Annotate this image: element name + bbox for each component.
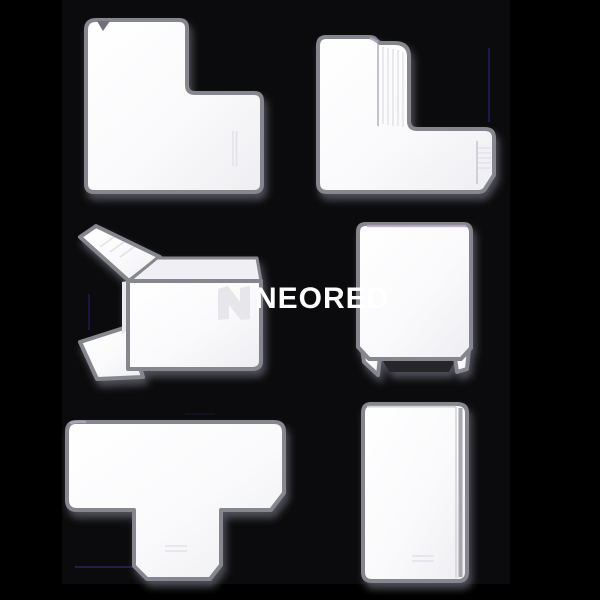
product-external-angle bbox=[80, 226, 261, 379]
product-straight-joint bbox=[363, 404, 467, 581]
front-face bbox=[128, 281, 261, 369]
product-flat-angle bbox=[86, 20, 262, 192]
product-grid-image: NEORED bbox=[0, 0, 600, 600]
product-end-cap bbox=[358, 224, 471, 375]
product-tee bbox=[67, 422, 284, 579]
products-illustration bbox=[0, 0, 600, 600]
product-internal-angle bbox=[318, 37, 494, 192]
